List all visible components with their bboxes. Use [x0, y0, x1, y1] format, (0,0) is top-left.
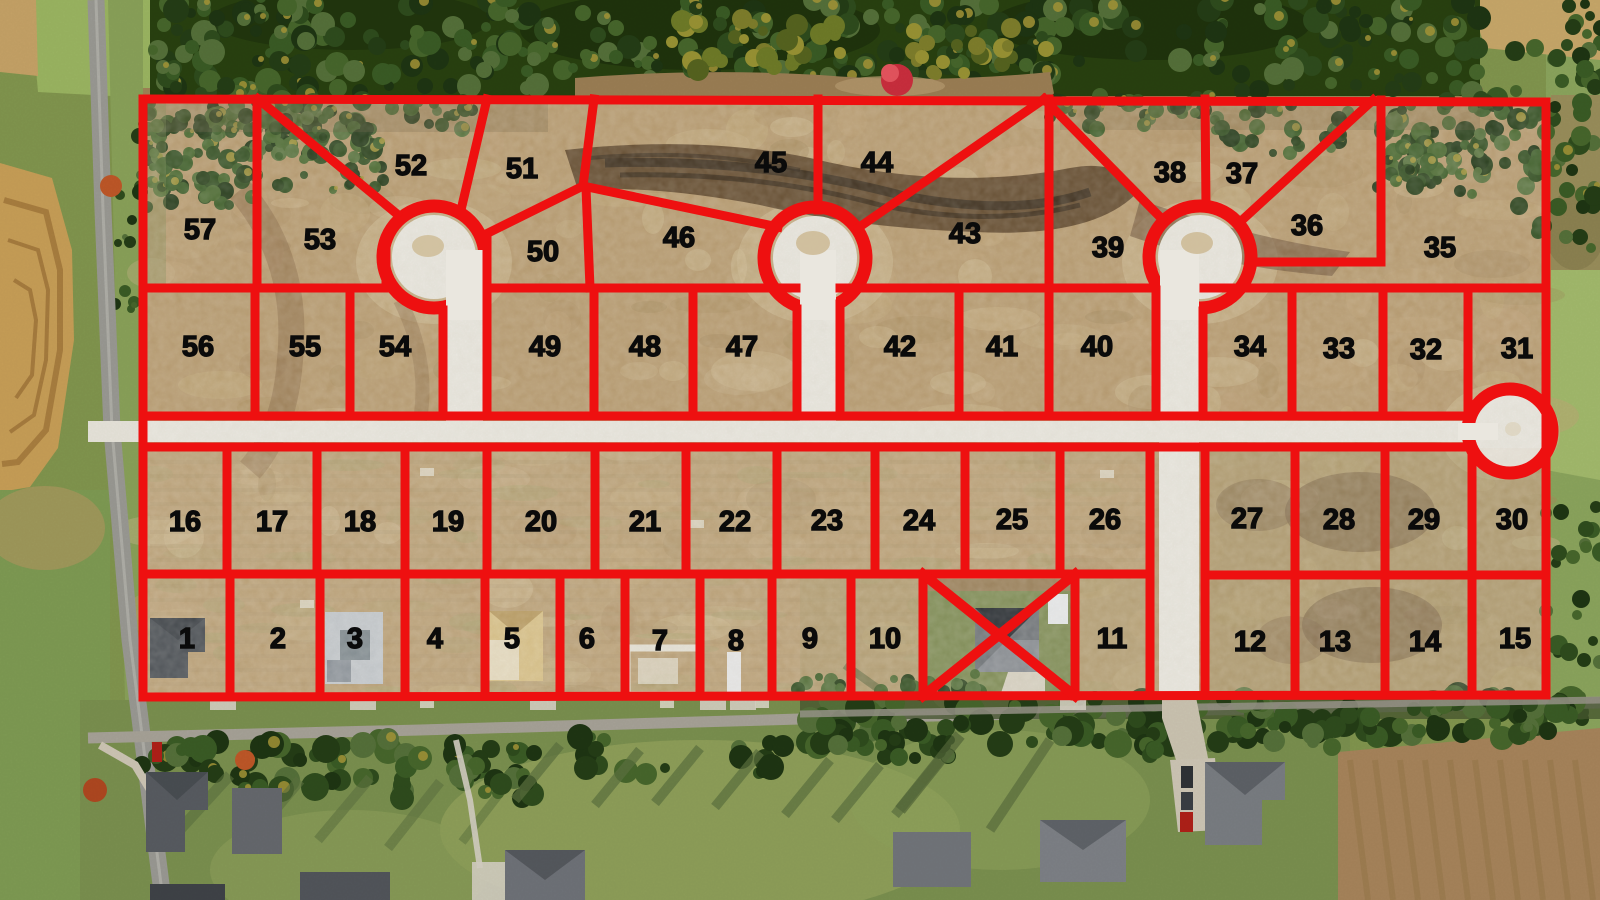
svg-text:16: 16: [169, 506, 201, 538]
svg-text:44: 44: [861, 147, 893, 179]
svg-text:41: 41: [986, 331, 1018, 363]
svg-text:51: 51: [506, 153, 538, 185]
svg-text:57: 57: [184, 214, 216, 246]
svg-text:17: 17: [256, 506, 288, 538]
svg-text:34: 34: [1234, 331, 1266, 363]
svg-text:19: 19: [432, 506, 464, 538]
svg-text:5: 5: [504, 623, 520, 655]
svg-text:2: 2: [270, 623, 286, 655]
svg-text:25: 25: [996, 504, 1028, 536]
svg-text:4: 4: [427, 623, 443, 655]
svg-text:24: 24: [903, 505, 935, 537]
svg-text:54: 54: [379, 331, 411, 363]
svg-text:52: 52: [395, 150, 427, 182]
svg-text:26: 26: [1089, 504, 1121, 536]
svg-text:49: 49: [529, 331, 561, 363]
svg-text:20: 20: [525, 506, 557, 538]
svg-text:45: 45: [755, 147, 787, 179]
svg-text:33: 33: [1323, 333, 1355, 365]
svg-text:1: 1: [179, 623, 195, 655]
svg-text:14: 14: [1409, 626, 1441, 658]
svg-text:31: 31: [1501, 333, 1533, 365]
svg-text:30: 30: [1496, 504, 1528, 536]
svg-text:8: 8: [728, 625, 744, 657]
svg-text:32: 32: [1410, 334, 1442, 366]
svg-text:23: 23: [811, 505, 843, 537]
svg-text:36: 36: [1291, 210, 1323, 242]
svg-text:55: 55: [289, 331, 321, 363]
svg-text:13: 13: [1319, 626, 1351, 658]
svg-text:28: 28: [1323, 504, 1355, 536]
svg-text:50: 50: [527, 236, 559, 268]
svg-text:53: 53: [304, 224, 336, 256]
svg-text:15: 15: [1499, 623, 1531, 655]
svg-text:43: 43: [949, 218, 981, 250]
svg-text:10: 10: [869, 623, 901, 655]
svg-text:47: 47: [726, 331, 758, 363]
svg-text:46: 46: [663, 222, 695, 254]
svg-text:9: 9: [802, 623, 818, 655]
svg-text:27: 27: [1231, 503, 1263, 535]
svg-text:42: 42: [884, 331, 916, 363]
svg-text:6: 6: [579, 623, 595, 655]
svg-text:12: 12: [1234, 626, 1266, 658]
svg-text:7: 7: [652, 625, 668, 657]
svg-text:22: 22: [719, 506, 751, 538]
svg-text:11: 11: [1097, 623, 1128, 655]
svg-text:21: 21: [629, 506, 661, 538]
svg-text:3: 3: [347, 623, 363, 655]
svg-text:39: 39: [1092, 232, 1124, 264]
svg-text:29: 29: [1408, 504, 1440, 536]
svg-text:18: 18: [344, 506, 376, 538]
svg-text:35: 35: [1424, 232, 1456, 264]
svg-text:37: 37: [1226, 158, 1258, 190]
svg-text:56: 56: [182, 331, 214, 363]
svg-text:38: 38: [1154, 157, 1186, 189]
svg-text:40: 40: [1081, 331, 1113, 363]
svg-text:48: 48: [629, 331, 661, 363]
